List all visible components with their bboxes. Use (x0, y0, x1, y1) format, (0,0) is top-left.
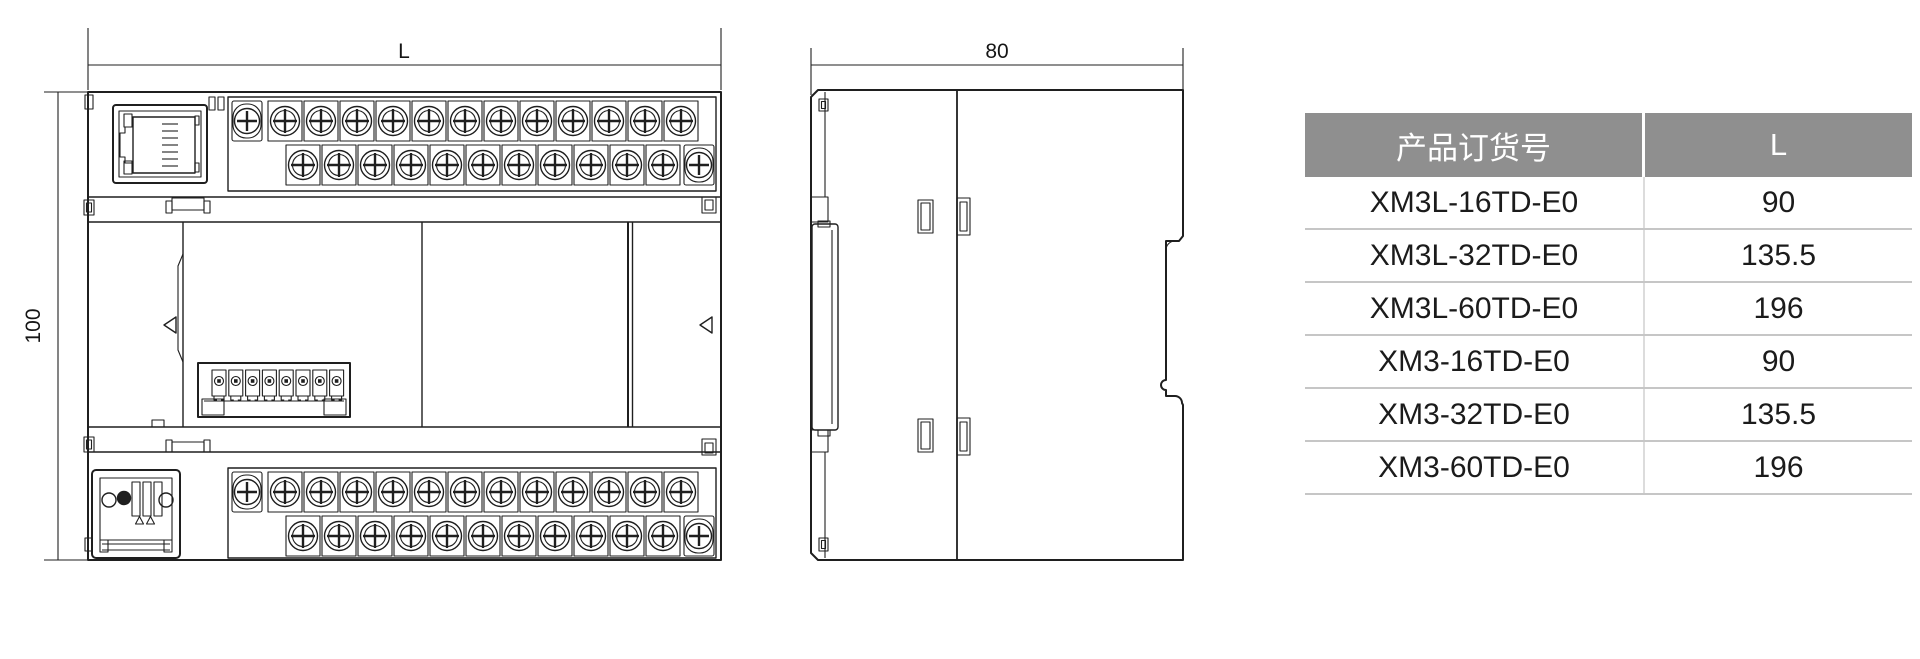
table-row: XM3-60TD-E0 196 (1305, 442, 1912, 495)
power-connector (92, 470, 180, 558)
order-table-header: 产品订货号 L (1305, 113, 1912, 177)
product-code-cell: XM3L-32TD-E0 (1305, 230, 1645, 281)
length-cell: 90 (1645, 336, 1912, 387)
product-code-cell: XM3L-60TD-E0 (1305, 283, 1645, 334)
length-cell: 90 (1645, 177, 1912, 228)
table-row: XM3-16TD-E0 90 (1305, 336, 1912, 389)
rj45-pins (162, 124, 178, 166)
rj45-port (113, 105, 207, 183)
middle-panel (152, 222, 712, 427)
side-left-flange (811, 92, 828, 558)
side-view: 80 (811, 40, 1183, 560)
table-row: XM3L-16TD-E0 90 (1305, 177, 1912, 230)
product-code-cell: XM3-16TD-E0 (1305, 336, 1645, 387)
mini-connector (198, 363, 350, 417)
front-height-label: 100 (22, 308, 45, 343)
door-bevel (178, 254, 183, 362)
order-table: 产品订货号 L XM3L-16TD-E0 90 XM3L-32TD-E0 135… (1305, 113, 1912, 495)
table-row: XM3L-32TD-E0 135.5 (1305, 230, 1912, 283)
side-latch-slots (918, 200, 933, 452)
side-tabs (957, 198, 970, 455)
length-cell: 135.5 (1645, 389, 1912, 440)
mounting-tabs-upper (84, 197, 716, 215)
front-width-label: L (398, 40, 410, 63)
product-code-cell: XM3-32TD-E0 (1305, 389, 1645, 440)
length-cell: 135.5 (1645, 230, 1912, 281)
product-code-cell: XM3L-16TD-E0 (1305, 177, 1645, 228)
dimension-width-L: L (88, 28, 721, 90)
dimension-height-100: 100 (22, 92, 88, 560)
din-rail-notch (1166, 241, 1175, 250)
dimension-width-80: 80 (811, 40, 1183, 95)
side-outline (811, 90, 1183, 560)
table-row: XM3L-60TD-E0 196 (1305, 283, 1912, 336)
side-door-panel (812, 221, 838, 436)
header-length: L (1645, 113, 1912, 177)
alignment-marker-left (164, 317, 176, 333)
drawing-canvas: L 100 (0, 0, 1920, 659)
top-terminal-strip (228, 97, 716, 191)
table-row: XM3-32TD-E0 135.5 (1305, 389, 1912, 442)
side-width-label: 80 (985, 40, 1008, 63)
length-cell: 196 (1645, 442, 1912, 493)
alignment-marker-right (700, 317, 712, 333)
front-view: L 100 (22, 28, 721, 560)
length-cell: 196 (1645, 283, 1912, 334)
product-code-cell: XM3-60TD-E0 (1305, 442, 1645, 493)
header-product-code: 产品订货号 (1305, 113, 1645, 177)
bottom-terminal-strip (228, 468, 716, 558)
